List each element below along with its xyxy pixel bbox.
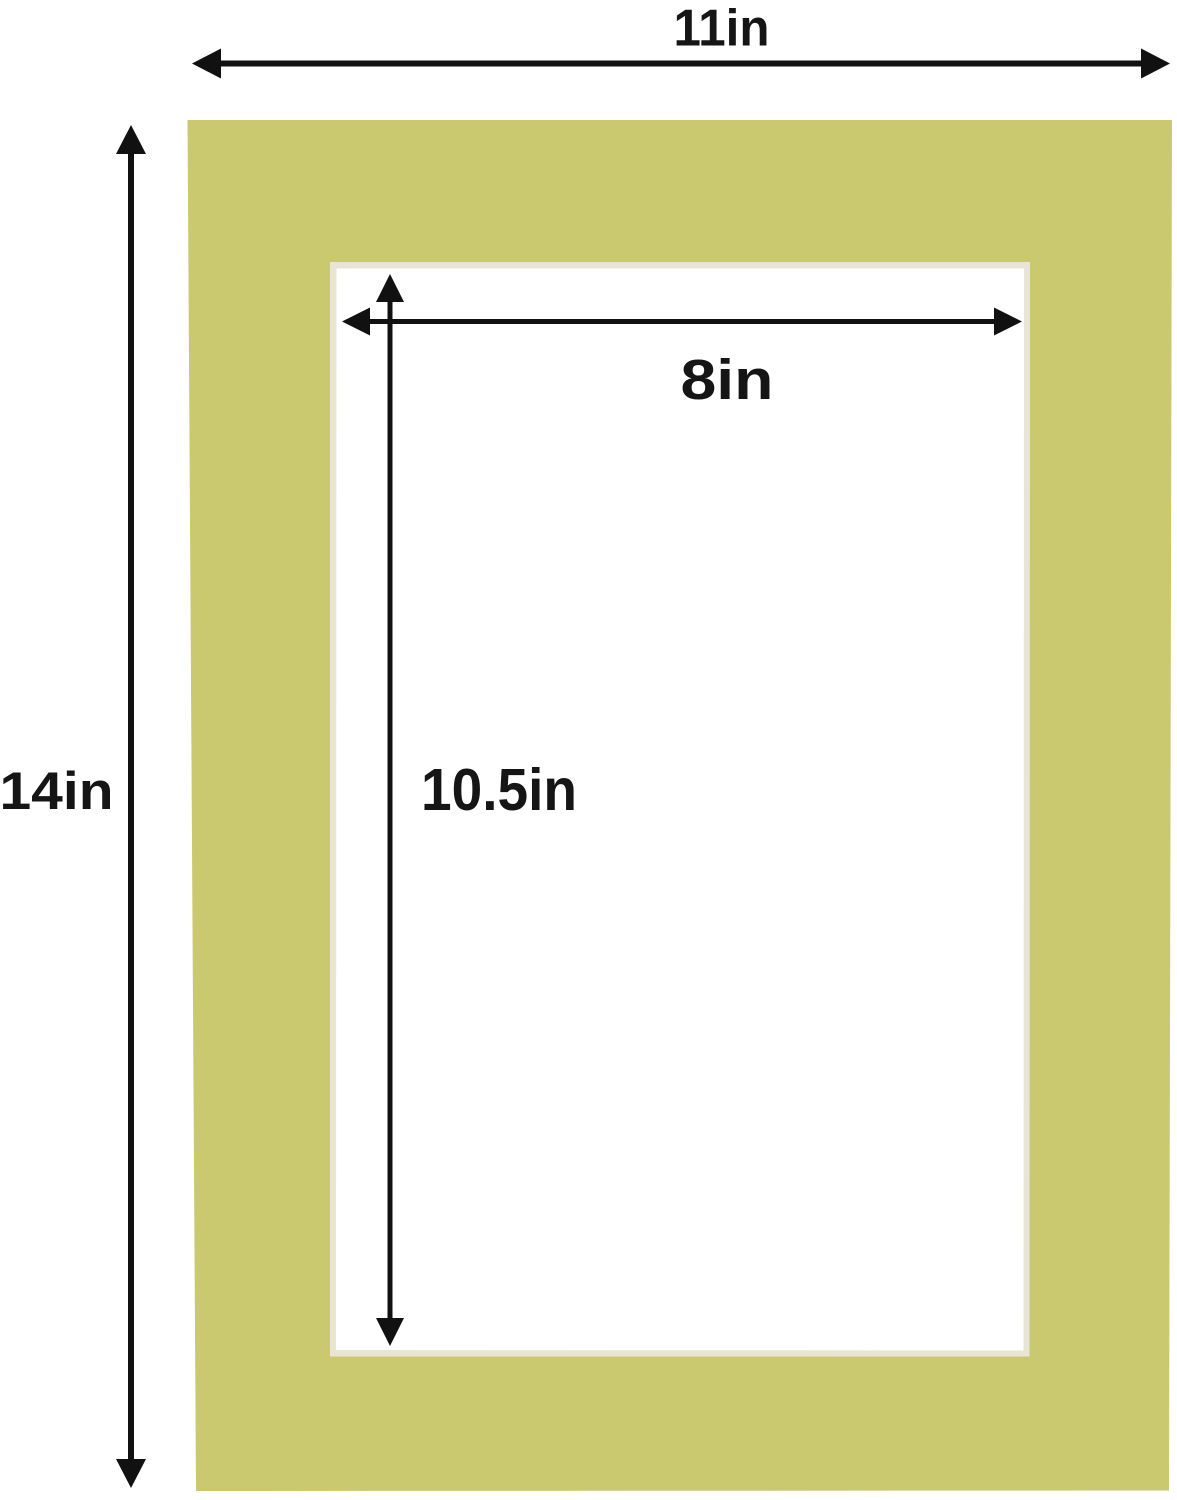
svg-text:14in: 14in [0, 762, 114, 821]
svg-text:8in: 8in [681, 348, 774, 412]
svg-text:10.5in: 10.5in [421, 757, 577, 823]
svg-text:11in: 11in [674, 0, 770, 58]
